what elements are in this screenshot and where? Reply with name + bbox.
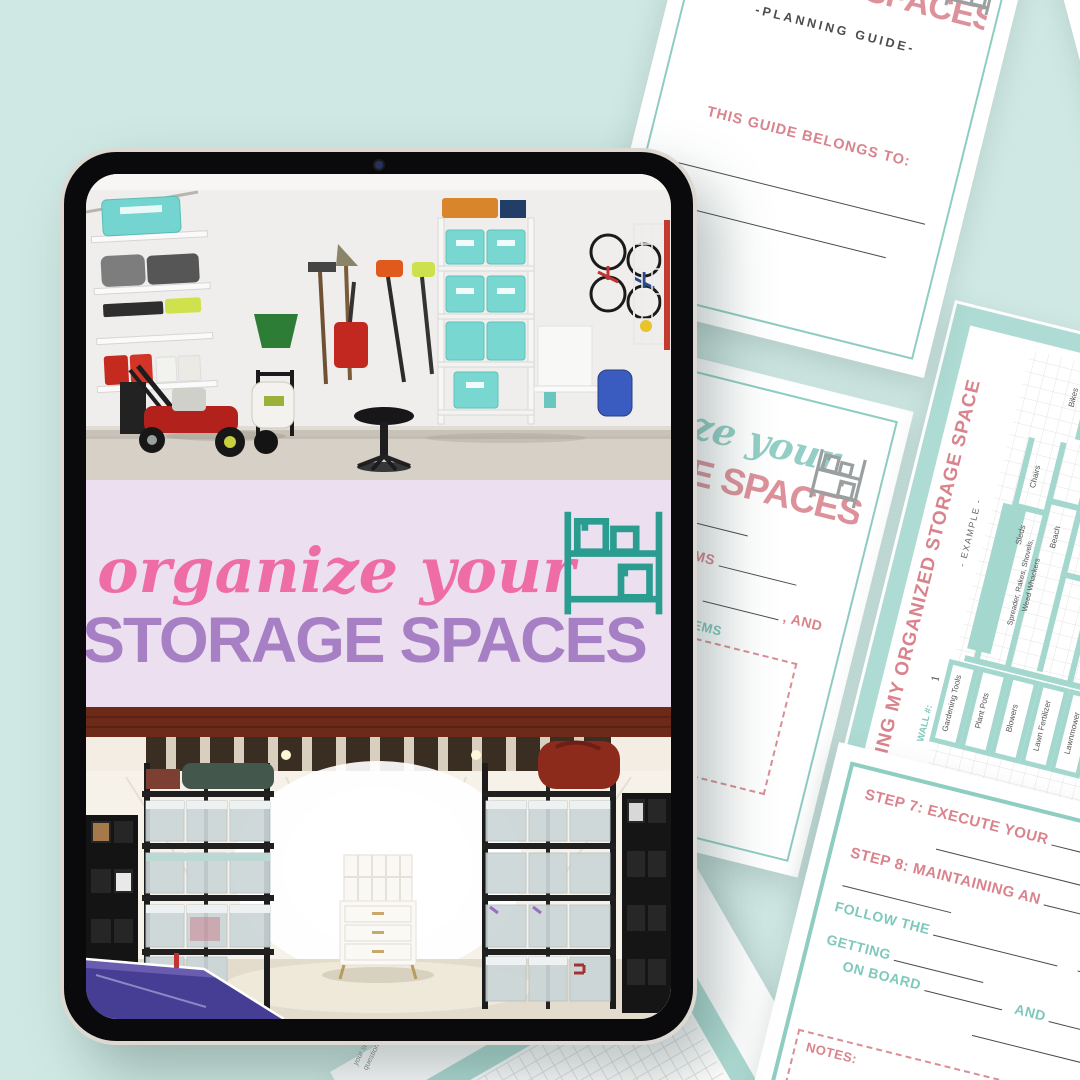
- mockup-canvas: your storage space questions from the ST…: [0, 0, 1080, 1080]
- tablet-screen: STORAGE SPACES organize your: [86, 174, 671, 1019]
- tablet: STORAGE SPACES organize your: [60, 148, 697, 1045]
- front-camera-icon: [375, 161, 383, 169]
- backpack: [598, 370, 632, 416]
- garage-photo: [86, 174, 671, 480]
- right-cube-organizer: [622, 793, 671, 1013]
- planning-wall-value: 1: [930, 674, 942, 683]
- basement-photo: [86, 707, 671, 1019]
- cover-banner-script-title: organize your: [97, 534, 579, 607]
- page-sliver: [1053, 0, 1080, 211]
- cover-banner-art: STORAGE SPACES organize your: [86, 480, 671, 707]
- cover-banner: STORAGE SPACES organize your: [86, 480, 671, 707]
- cover-banner-block-title: STORAGE SPACES: [86, 604, 646, 676]
- notes-label: NOTES:: [805, 1039, 859, 1066]
